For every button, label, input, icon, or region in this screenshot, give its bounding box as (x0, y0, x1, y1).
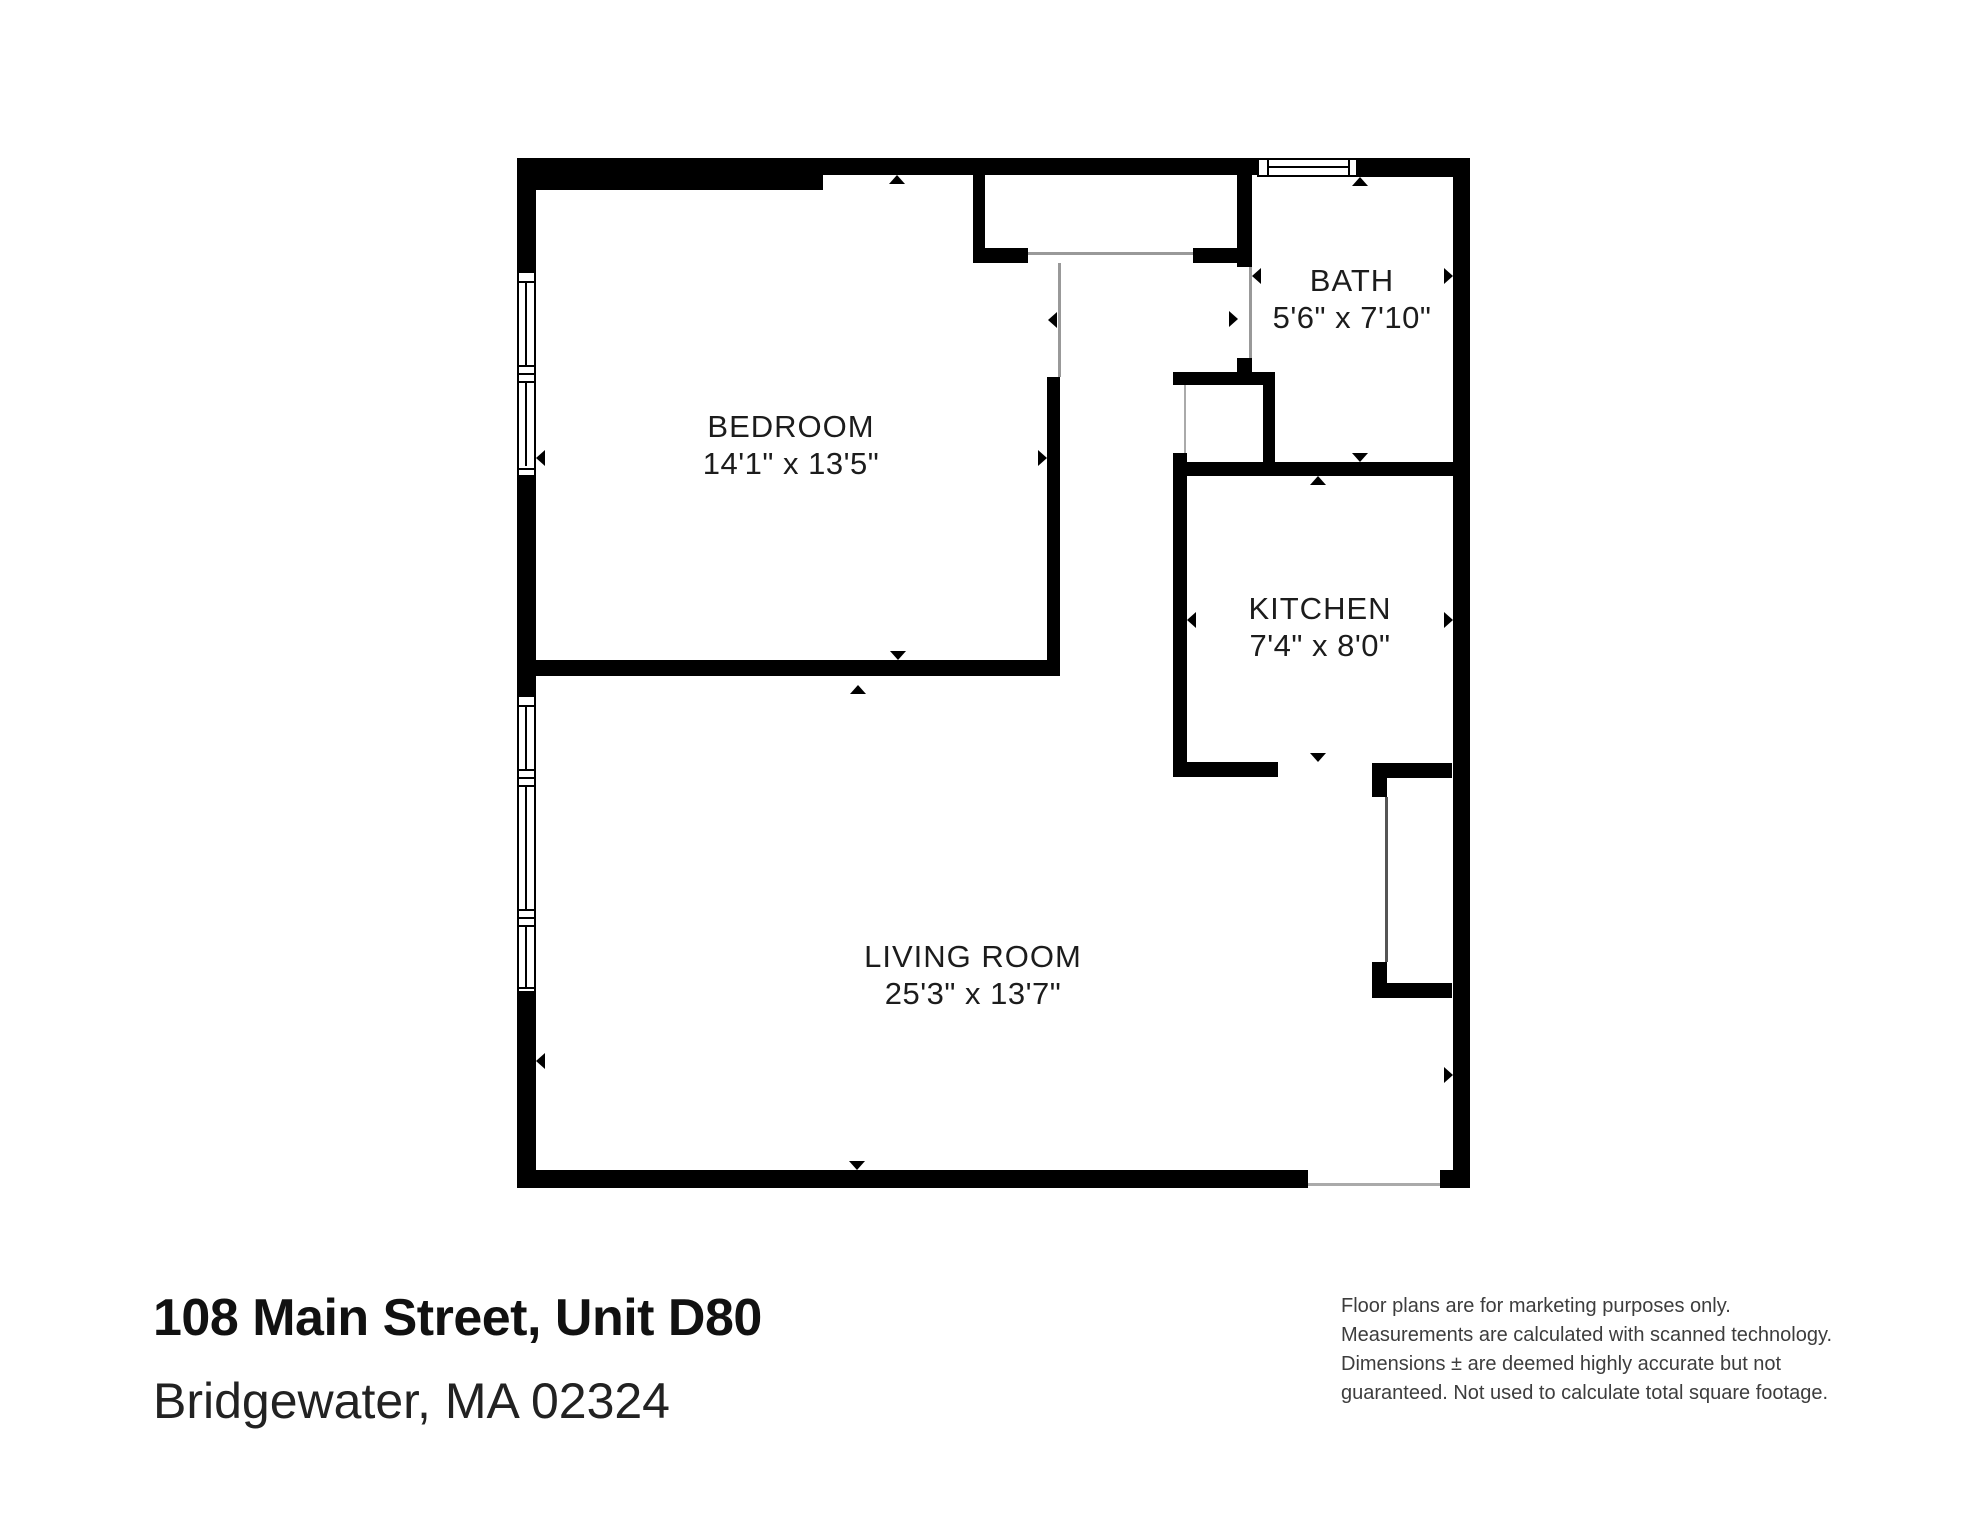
room-dims-living-room: 25'3" x 13'7" (763, 975, 1183, 1012)
wall-segment (1372, 763, 1387, 797)
wall-segment (517, 190, 536, 271)
wall-segment (517, 158, 823, 190)
up-arrow-marker-icon (889, 175, 905, 184)
wall-segment (517, 1170, 1308, 1188)
room-name-living-room: LIVING ROOM (763, 938, 1183, 975)
door-opening-line (1308, 1183, 1440, 1186)
window-center-line (525, 383, 527, 466)
wall-segment (1173, 762, 1278, 777)
down-arrow-marker-icon (849, 1161, 865, 1170)
right-arrow-marker-icon (1444, 1067, 1453, 1083)
property-address: 108 Main Street, Unit D80 Bridgewater, M… (153, 1288, 762, 1430)
down-arrow-marker-icon (890, 651, 906, 660)
wall-segment (1372, 983, 1452, 998)
left-arrow-marker-icon (536, 1053, 545, 1069)
window-mullion (519, 917, 534, 919)
window-mullion (519, 365, 534, 367)
room-label-living-room: LIVING ROOM 25'3" x 13'7" (763, 938, 1183, 1012)
window-mullion (1348, 160, 1350, 175)
window (517, 271, 536, 477)
door-opening-line (1058, 263, 1061, 377)
door-opening-line (1028, 252, 1193, 255)
room-name-bedroom: BEDROOM (581, 408, 1001, 445)
window-center-line (525, 785, 527, 909)
wall-segment (517, 993, 536, 1170)
disclaimer-line: Dimensions ± are deemed highly accurate … (1341, 1350, 1832, 1379)
room-name-bath: BATH (1142, 262, 1562, 299)
door-opening-line (1184, 385, 1186, 453)
wall-segment (1173, 372, 1275, 385)
address-city: Bridgewater, MA 02324 (153, 1372, 762, 1430)
wall-segment (1173, 462, 1453, 476)
wall-segment (823, 158, 1257, 175)
wall-segment (973, 248, 1028, 263)
disclaimer-line: guaranteed. Not used to calculate total … (1341, 1379, 1832, 1408)
up-arrow-marker-icon (850, 685, 866, 694)
left-arrow-marker-icon (1048, 312, 1057, 328)
up-arrow-marker-icon (1352, 177, 1368, 186)
window-center-line (1269, 166, 1348, 168)
window-center-line (525, 283, 527, 365)
floor-plan: BEDROOM 14'1" x 13'5" BATH 5'6" x 7'10" … (0, 0, 1988, 1250)
window (517, 695, 536, 993)
window-mullion (519, 909, 534, 911)
disclaimer-line: Measurements are calculated with scanned… (1341, 1321, 1832, 1350)
window-mullion (519, 373, 534, 375)
room-label-kitchen: KITCHEN 7'4" x 8'0" (1110, 590, 1530, 664)
wall-segment (1440, 1170, 1470, 1188)
disclaimer-line: Floor plans are for marketing purposes o… (1341, 1292, 1832, 1321)
wall-segment (1237, 175, 1252, 267)
left-arrow-marker-icon (536, 450, 545, 466)
window-center-line (525, 925, 527, 987)
window (1257, 158, 1358, 177)
window-mullion (519, 769, 534, 771)
room-dims-kitchen: 7'4" x 8'0" (1110, 627, 1530, 664)
right-arrow-marker-icon (1038, 450, 1047, 466)
address-street: 108 Main Street, Unit D80 (153, 1288, 762, 1348)
window-mullion (519, 987, 534, 989)
room-dims-bedroom: 14'1" x 13'5" (581, 445, 1001, 482)
window-mullion (519, 468, 534, 470)
wall-segment (1047, 377, 1060, 660)
room-name-kitchen: KITCHEN (1110, 590, 1530, 627)
floor-plan-page: BEDROOM 14'1" x 13'5" BATH 5'6" x 7'10" … (0, 0, 1988, 1536)
window-center-line (525, 707, 527, 769)
room-dims-bath: 5'6" x 7'10" (1142, 299, 1562, 336)
down-arrow-marker-icon (1352, 453, 1368, 462)
down-arrow-marker-icon (1310, 753, 1326, 762)
room-label-bath: BATH 5'6" x 7'10" (1142, 262, 1562, 336)
window-mullion (519, 777, 534, 779)
room-label-bedroom: BEDROOM 14'1" x 13'5" (581, 408, 1001, 482)
wall-segment (517, 660, 1060, 676)
wall-segment (1263, 372, 1275, 473)
wall-segment (1193, 248, 1237, 263)
up-arrow-marker-icon (1310, 476, 1326, 485)
disclaimer-text: Floor plans are for marketing purposes o… (1341, 1292, 1832, 1408)
door-opening-line (1385, 797, 1388, 962)
